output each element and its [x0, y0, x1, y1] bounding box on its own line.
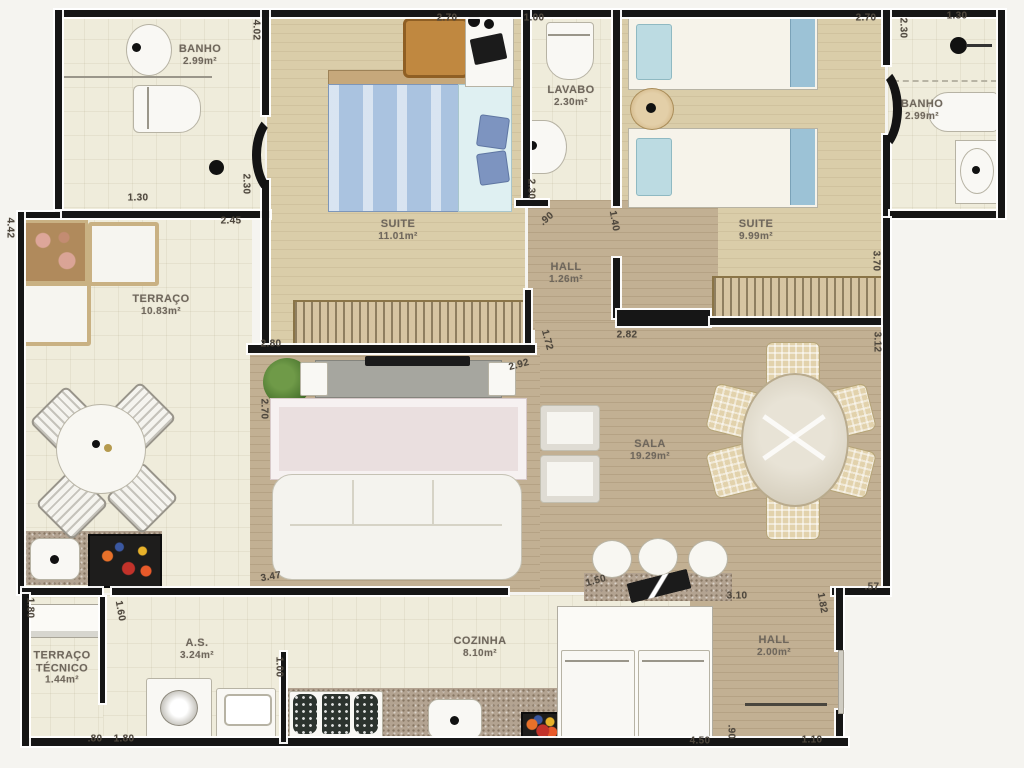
dimension-label: 1.00	[274, 657, 285, 678]
room-label-banho-dir: BANHO2.99m²	[901, 98, 943, 122]
room-name: LAVABO	[547, 84, 594, 96]
dimension-label: 2.70	[259, 399, 270, 420]
room-name: A.S.	[186, 637, 209, 649]
room-label-banho-esq: BANHO2.99m²	[179, 43, 221, 67]
room-name: COZINHA	[454, 635, 507, 647]
room-area: 2.99m²	[179, 56, 221, 68]
room-area: 1.26m²	[549, 274, 583, 286]
room-label-terraco-tecnico: TERRAÇO TÉCNICO1.44m²	[33, 650, 90, 687]
room-label-hall-intimo: HALL1.26m²	[549, 261, 583, 285]
dimension-label: .57	[865, 582, 880, 593]
dimension-label: 2.30	[898, 18, 909, 39]
room-label-as: A.S.3.24m²	[180, 637, 214, 661]
room-area: 1.44m²	[33, 675, 90, 687]
dimension-label: 2.45	[221, 216, 242, 227]
room-area: 11.01m²	[378, 231, 418, 243]
dimension-label: 1.72	[539, 329, 555, 352]
dimension-label: .80	[88, 734, 103, 745]
room-name: HALL	[551, 261, 582, 273]
dimension-label: 2.92	[508, 357, 531, 373]
room-name: SUITE	[739, 218, 773, 230]
room-name: HALL	[759, 634, 790, 646]
dimension-label: 2.70	[856, 13, 877, 24]
room-label-cozinha: COZINHA8.10m²	[454, 635, 507, 659]
room-name: BANHO	[901, 98, 943, 110]
dimension-label: 3.10	[727, 591, 748, 602]
room-name: TERRAÇO	[132, 293, 189, 305]
room-area: 2.30m²	[547, 97, 594, 109]
dimension-label: 3.12	[872, 332, 883, 353]
dimension-label: .90	[538, 210, 556, 228]
dimension-label: .90	[726, 725, 737, 740]
room-area: 8.10m²	[454, 648, 507, 660]
dimension-label: 2.82	[617, 330, 638, 341]
dimension-label: 1.00	[524, 13, 545, 24]
room-label-lavabo: LAVABO2.30m²	[547, 84, 594, 108]
room-label-suite-2: SUITE9.99m²	[739, 218, 773, 242]
dimension-label: 1.30	[128, 193, 149, 204]
dimension-label: 2.80	[261, 339, 282, 350]
dimension-label: 1.82	[815, 592, 829, 614]
room-label-terraco: TERRAÇO10.83m²	[132, 293, 189, 317]
room-area: 3.24m²	[180, 650, 214, 662]
room-name: BANHO	[179, 43, 221, 55]
room-name: SALA	[634, 438, 666, 450]
room-label-suite-1: SUITE11.01m²	[378, 218, 418, 242]
dimension-label: 1.80	[114, 734, 135, 745]
dimension-label: 4.50	[690, 736, 711, 747]
dimension-label: 1.60	[113, 600, 127, 622]
dimension-label: 4.02	[251, 20, 262, 41]
room-label-hall-entrada: HALL2.00m²	[757, 634, 791, 658]
dimension-label: 3.47	[260, 570, 282, 584]
dimension-label: 3.70	[871, 251, 882, 272]
room-name: SUITE	[381, 218, 415, 230]
dimension-label: 2.30	[526, 179, 537, 200]
room-name: TERRAÇO TÉCNICO	[33, 650, 90, 675]
dimension-label: 1.30	[947, 11, 968, 22]
dimension-label: 1.40	[607, 210, 621, 232]
dimension-label: 2.30	[241, 174, 252, 195]
room-area: 9.99m²	[739, 231, 773, 243]
room-area: 2.99m²	[901, 111, 943, 123]
floor-plan-canvas: BANHO2.99m²SUITE11.01m²LAVABO2.30m²SUITE…	[0, 0, 1024, 768]
dimension-label: 1.50	[585, 573, 608, 589]
room-area: 2.00m²	[757, 647, 791, 659]
dimension-label: 1.80	[25, 598, 36, 619]
room-area: 10.83m²	[132, 306, 189, 318]
dimension-label: 4.42	[5, 218, 16, 239]
labels-layer: BANHO2.99m²SUITE11.01m²LAVABO2.30m²SUITE…	[0, 0, 1024, 768]
dimension-label: 1.10	[802, 735, 823, 746]
room-area: 19.29m²	[630, 451, 670, 463]
dimension-label: 2.70	[437, 13, 458, 24]
room-label-sala: SALA19.29m²	[630, 438, 670, 462]
